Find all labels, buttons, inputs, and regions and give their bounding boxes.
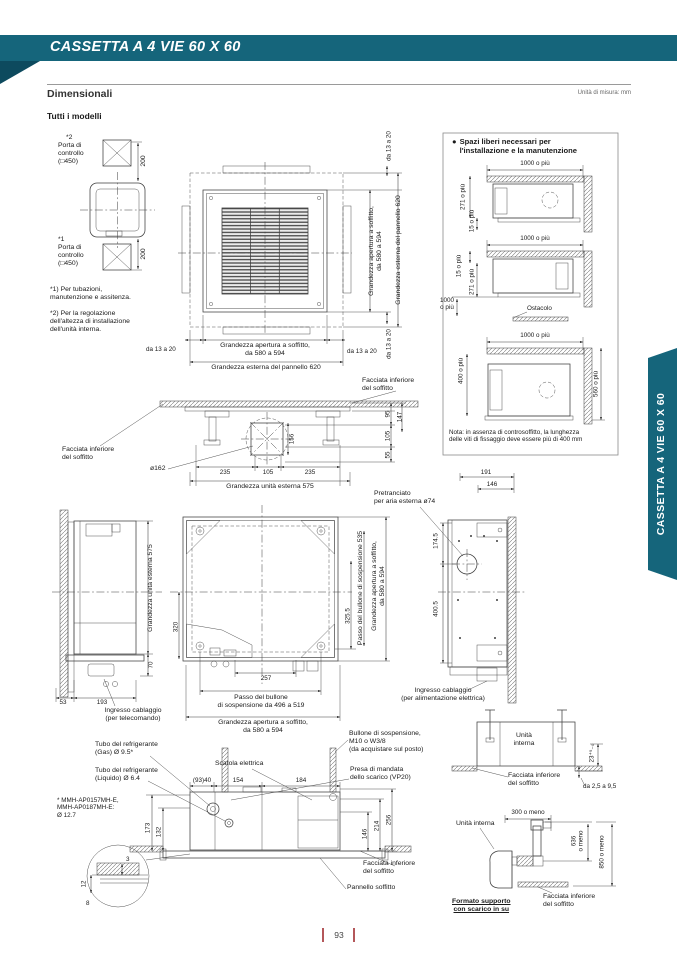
dim-560: 560 o più: [592, 371, 599, 397]
dim-132: 132: [155, 827, 162, 838]
dim-dia162: ø162: [150, 465, 166, 473]
left-side-view-drawing: [52, 510, 162, 706]
dim-95: 95: [384, 410, 391, 417]
dim-pannello-right: Grandezza esterna del pannello 620: [395, 195, 403, 305]
dim-184: 184: [296, 777, 307, 784]
bullet-icon: ●: [452, 137, 457, 156]
dim-unita-575-bottom: Grandezza unità esterna 575: [226, 483, 314, 491]
dim-apertura-right: Grandezza apertura a soffitto, da 580 a …: [368, 206, 384, 296]
dim-191: 191: [481, 469, 492, 476]
dim-15-1: 15 o più: [468, 210, 475, 232]
facciata-label-i2: Facciata inferiore del soffitto: [543, 893, 595, 909]
facciata-label-top-right: Facciata inferiore del soffitto: [362, 377, 414, 393]
dim-156: 156: [288, 434, 295, 445]
page-number-bar-right: [353, 928, 355, 942]
dim-271-2: 271 o più: [468, 269, 475, 295]
dim-146-g: 146: [487, 481, 498, 488]
dim-70: 70: [147, 661, 154, 668]
page-number-bar-left: [322, 928, 324, 942]
dim-93-40: (93)40: [193, 777, 211, 784]
dim-105: 105: [384, 431, 391, 442]
clearance-title: ● Spazi liberi necessari per l'installaz…: [452, 137, 577, 156]
dim-200-bottom: 200: [140, 248, 148, 259]
dim-3: 3: [126, 856, 130, 863]
dim-400: 400 o più: [457, 358, 464, 384]
dim-1000-obstacle: 1000 o più: [440, 297, 454, 312]
dim-235-a: 235: [220, 469, 231, 476]
dim-13-20-bottom-right2: da 13 a 20: [347, 348, 377, 355]
dim-174-5: 174.5: [432, 533, 439, 549]
port2-label: Porta di controllo (□450): [58, 142, 84, 166]
dim-636: 636 o meno: [571, 830, 586, 851]
dim-2-5-9-5: da 2,5 a 9,5: [583, 783, 616, 790]
scatola-elettrica-label: Scatola elettrica: [215, 760, 263, 768]
pannello-soffitto-label: Pannello soffitto: [347, 884, 395, 892]
dim-12: 12: [80, 880, 87, 887]
dim-1000-3: 1000 o più: [520, 332, 549, 339]
dim-apertura-right-f: Grandezza apertura a soffitto, da 580 a …: [371, 541, 387, 631]
presa-mandata-label: Presa di mandata dello scarico (VP20): [350, 766, 411, 782]
dim-146-h: 146: [361, 829, 368, 840]
dim-105-b: 105: [263, 469, 274, 476]
dim-passo-535: Passo del bullone di sospensione 535: [357, 531, 365, 645]
footnote-2: *2) Per la regolazione dell'altezza di i…: [50, 310, 130, 334]
dim-53: 53: [59, 699, 66, 706]
right-side-view-drawing: [438, 473, 525, 703]
dim-apertura-bottom-f: Grandezza apertura a soffitto, da 580 a …: [218, 719, 308, 735]
dim-1000-2: 1000 o più: [520, 235, 549, 242]
dim-257: 257: [261, 675, 272, 682]
dim-23: 23⁺⁵₋₀: [588, 744, 595, 763]
ceiling-section-drawing: [100, 401, 418, 486]
port2-star: *2: [66, 134, 72, 142]
tubo-liquido-label: Tubo del refrigerante (Liquido) Ø 6.4: [95, 767, 158, 783]
dim-193: 193: [97, 699, 108, 706]
catalog-page: CASSETTA A 4 VIE 60 X 60 Dimensionali Un…: [0, 0, 677, 958]
dim-55: 55: [384, 451, 391, 458]
dim-200-top: 200: [140, 155, 148, 166]
dim-8: 8: [86, 900, 90, 907]
page-number: 93: [327, 930, 351, 940]
dim-256: 256: [385, 815, 392, 826]
dim-13-20-bottom-left: da 13 a 20: [146, 346, 176, 353]
facciata-label-i1: Facciata inferiore del soffitto: [508, 772, 560, 788]
port1-star: *1: [58, 236, 64, 244]
dim-400-5: 400.5: [432, 601, 439, 617]
dim-214: 214: [373, 821, 380, 832]
dim-apertura-bottom: Grandezza apertura a soffitto, da 580 a …: [220, 342, 310, 358]
bullone-label: Bullone di sospensione, M10 o W3/8 (da a…: [349, 730, 423, 754]
port1-label: Porta di controllo (□450): [58, 244, 84, 268]
dim-325-5: 325.5: [344, 608, 351, 624]
dim-1000-1: 1000 o più: [520, 160, 549, 167]
dim-154: 154: [233, 777, 244, 784]
dim-850: 850 o meno: [598, 835, 605, 868]
footnote-1: *1) Per tubazioni, manutenzione e assite…: [50, 286, 131, 302]
models-footnote: * MMH-AP0157MH-E, MMH-AP0187MH-E: Ø 12.7: [57, 797, 119, 819]
facciata-label-left: Facciata inferiore del soffitto: [62, 446, 114, 462]
formato-supporto-label: Formato supporto con scarico in su: [452, 898, 511, 914]
unita-interna-box-label: Unità interna: [514, 732, 535, 748]
ingresso-alimentazione-label: Ingresso cablaggio (per alimentazione el…: [401, 687, 485, 703]
dim-147: 147: [396, 412, 403, 423]
facciata-label-h: Facciata inferiore del soffitto: [363, 860, 415, 876]
dim-13-20-bottom-right: da 13 a 20: [385, 329, 392, 359]
dim-13-20-top: da 13 a 20: [385, 131, 392, 161]
dim-pannello-bottom: Grandezza esterna del pannello 620: [211, 364, 321, 372]
dim-15-2: 15 o più: [455, 255, 462, 277]
obstacle-label: Ostacolo: [527, 305, 552, 312]
dim-320: 320: [172, 622, 179, 633]
tubo-gas-label: Tubo del refrigerante (Gas) Ø 9.5*: [95, 741, 158, 757]
ingresso-telecomando-label: Ingresso cablaggio (per telecomando): [104, 707, 161, 723]
dim-passo-496-519: Passo del bullone di sospensione da 496 …: [218, 694, 305, 710]
dim-235-b: 235: [305, 469, 316, 476]
dim-unita-575-left: Grandezza unità esterna 575: [147, 544, 155, 632]
dim-271-1: 271 o più: [459, 184, 466, 210]
sidebar-tab-label: CASSETTA A 4 VIE 60 X 60: [655, 393, 667, 535]
unita-interna-label-2: Unità interna: [456, 820, 495, 828]
dim-300: 300 o meno: [511, 809, 544, 816]
pretranciato-label: Pretranciato per aria esterna ø74: [374, 490, 435, 506]
clearance-note: Nota: in assenza di controsoffitto, la l…: [449, 429, 582, 444]
dim-173: 173: [144, 823, 151, 834]
